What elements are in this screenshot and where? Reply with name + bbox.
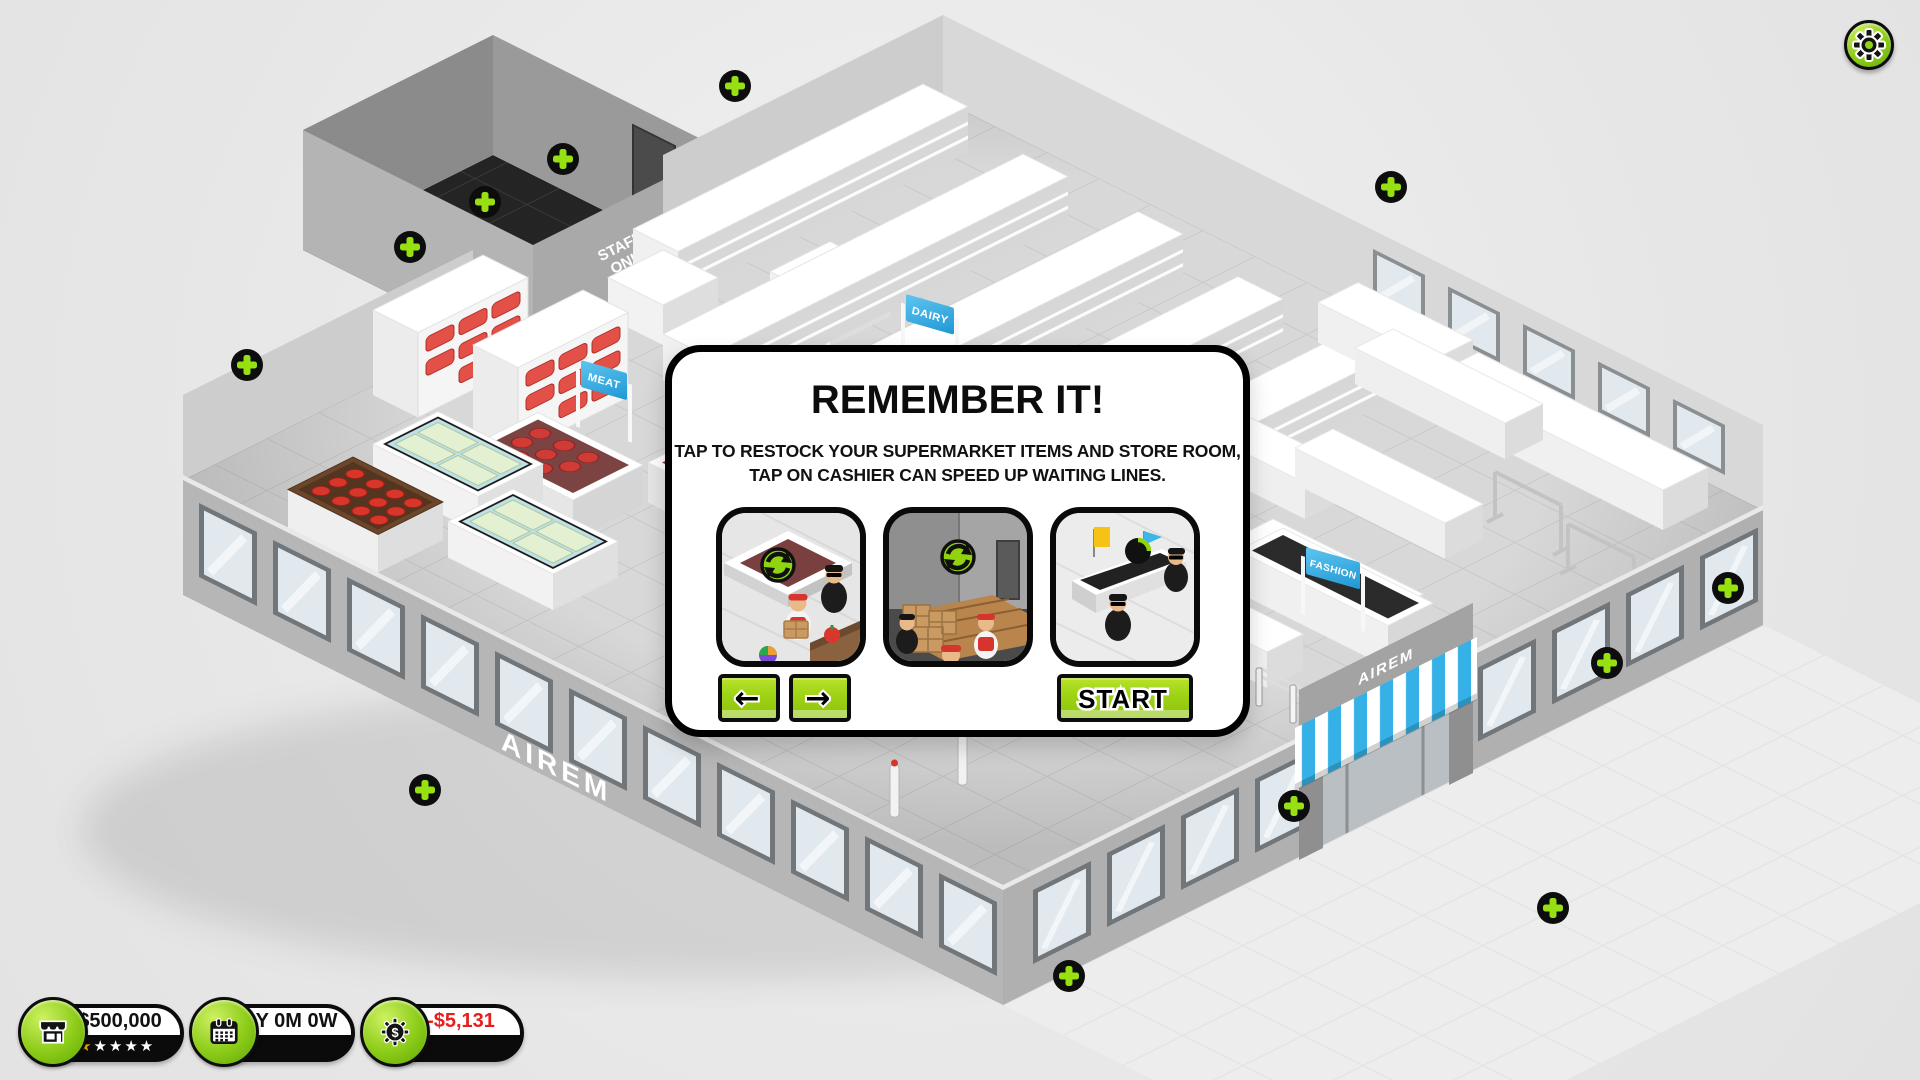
expand-plus-button[interactable] [231, 349, 263, 381]
expand-plus-button[interactable] [1537, 892, 1569, 924]
next-slide-button[interactable]: → [789, 674, 851, 722]
modal-description: TAP TO RESTOCK YOUR SUPERMARKET ITEMS AN… [672, 439, 1243, 487]
tutorial-modal: REMEMBER IT! TAP TO RESTOCK YOUR SUPERMA… [665, 345, 1250, 737]
date-pill: 0Y 0M 0W [195, 1000, 355, 1058]
tutorial-slide-speed-up-cashier [1050, 507, 1200, 667]
game-stage: STAFF ONLY [0, 0, 1920, 1080]
expand-plus-button[interactable] [1053, 960, 1085, 992]
settings-button[interactable] [1844, 20, 1894, 70]
expand-plus-button[interactable] [409, 774, 441, 806]
svg-text:←: ← [734, 681, 759, 716]
expand-plus-button[interactable] [719, 70, 751, 102]
hud-bar: $500,000 ★★★★★ 0Y 0M 0W [24, 1000, 524, 1058]
svg-text:→: → [805, 681, 830, 716]
money-pill: $500,000 ★★★★★ [24, 1000, 184, 1058]
expense-pill: -$5,131 $ [366, 1000, 524, 1058]
store-rating: ★★★★★ [78, 1039, 155, 1054]
start-button[interactable]: START [1057, 674, 1193, 722]
expand-plus-button[interactable] [1591, 647, 1623, 679]
calendar-icon [189, 997, 259, 1067]
expand-plus-button[interactable] [547, 143, 579, 175]
tutorial-slides [672, 507, 1243, 667]
tutorial-slide-restock-shelf [716, 507, 866, 667]
arrow-right-icon: → [793, 680, 843, 716]
expand-plus-button[interactable] [469, 186, 501, 218]
svg-text:$: $ [391, 1025, 398, 1040]
expenses-gear-dollar-icon: $ [360, 997, 430, 1067]
svg-text:START: START [1078, 684, 1168, 714]
expand-plus-button[interactable] [1375, 171, 1407, 203]
start-button-label: START [1061, 680, 1185, 716]
arrow-left-icon: ← [722, 680, 772, 716]
modal-controls: ← → START [672, 674, 1243, 724]
prev-slide-button[interactable]: ← [718, 674, 780, 722]
expand-plus-button[interactable] [1712, 572, 1744, 604]
expand-plus-button[interactable] [1278, 790, 1310, 822]
tutorial-slide-restock-storeroom [883, 507, 1033, 667]
store-icon [18, 997, 88, 1067]
modal-title: REMEMBER IT! [672, 378, 1243, 423]
expand-plus-button[interactable] [394, 231, 426, 263]
gear-icon [1851, 27, 1887, 63]
